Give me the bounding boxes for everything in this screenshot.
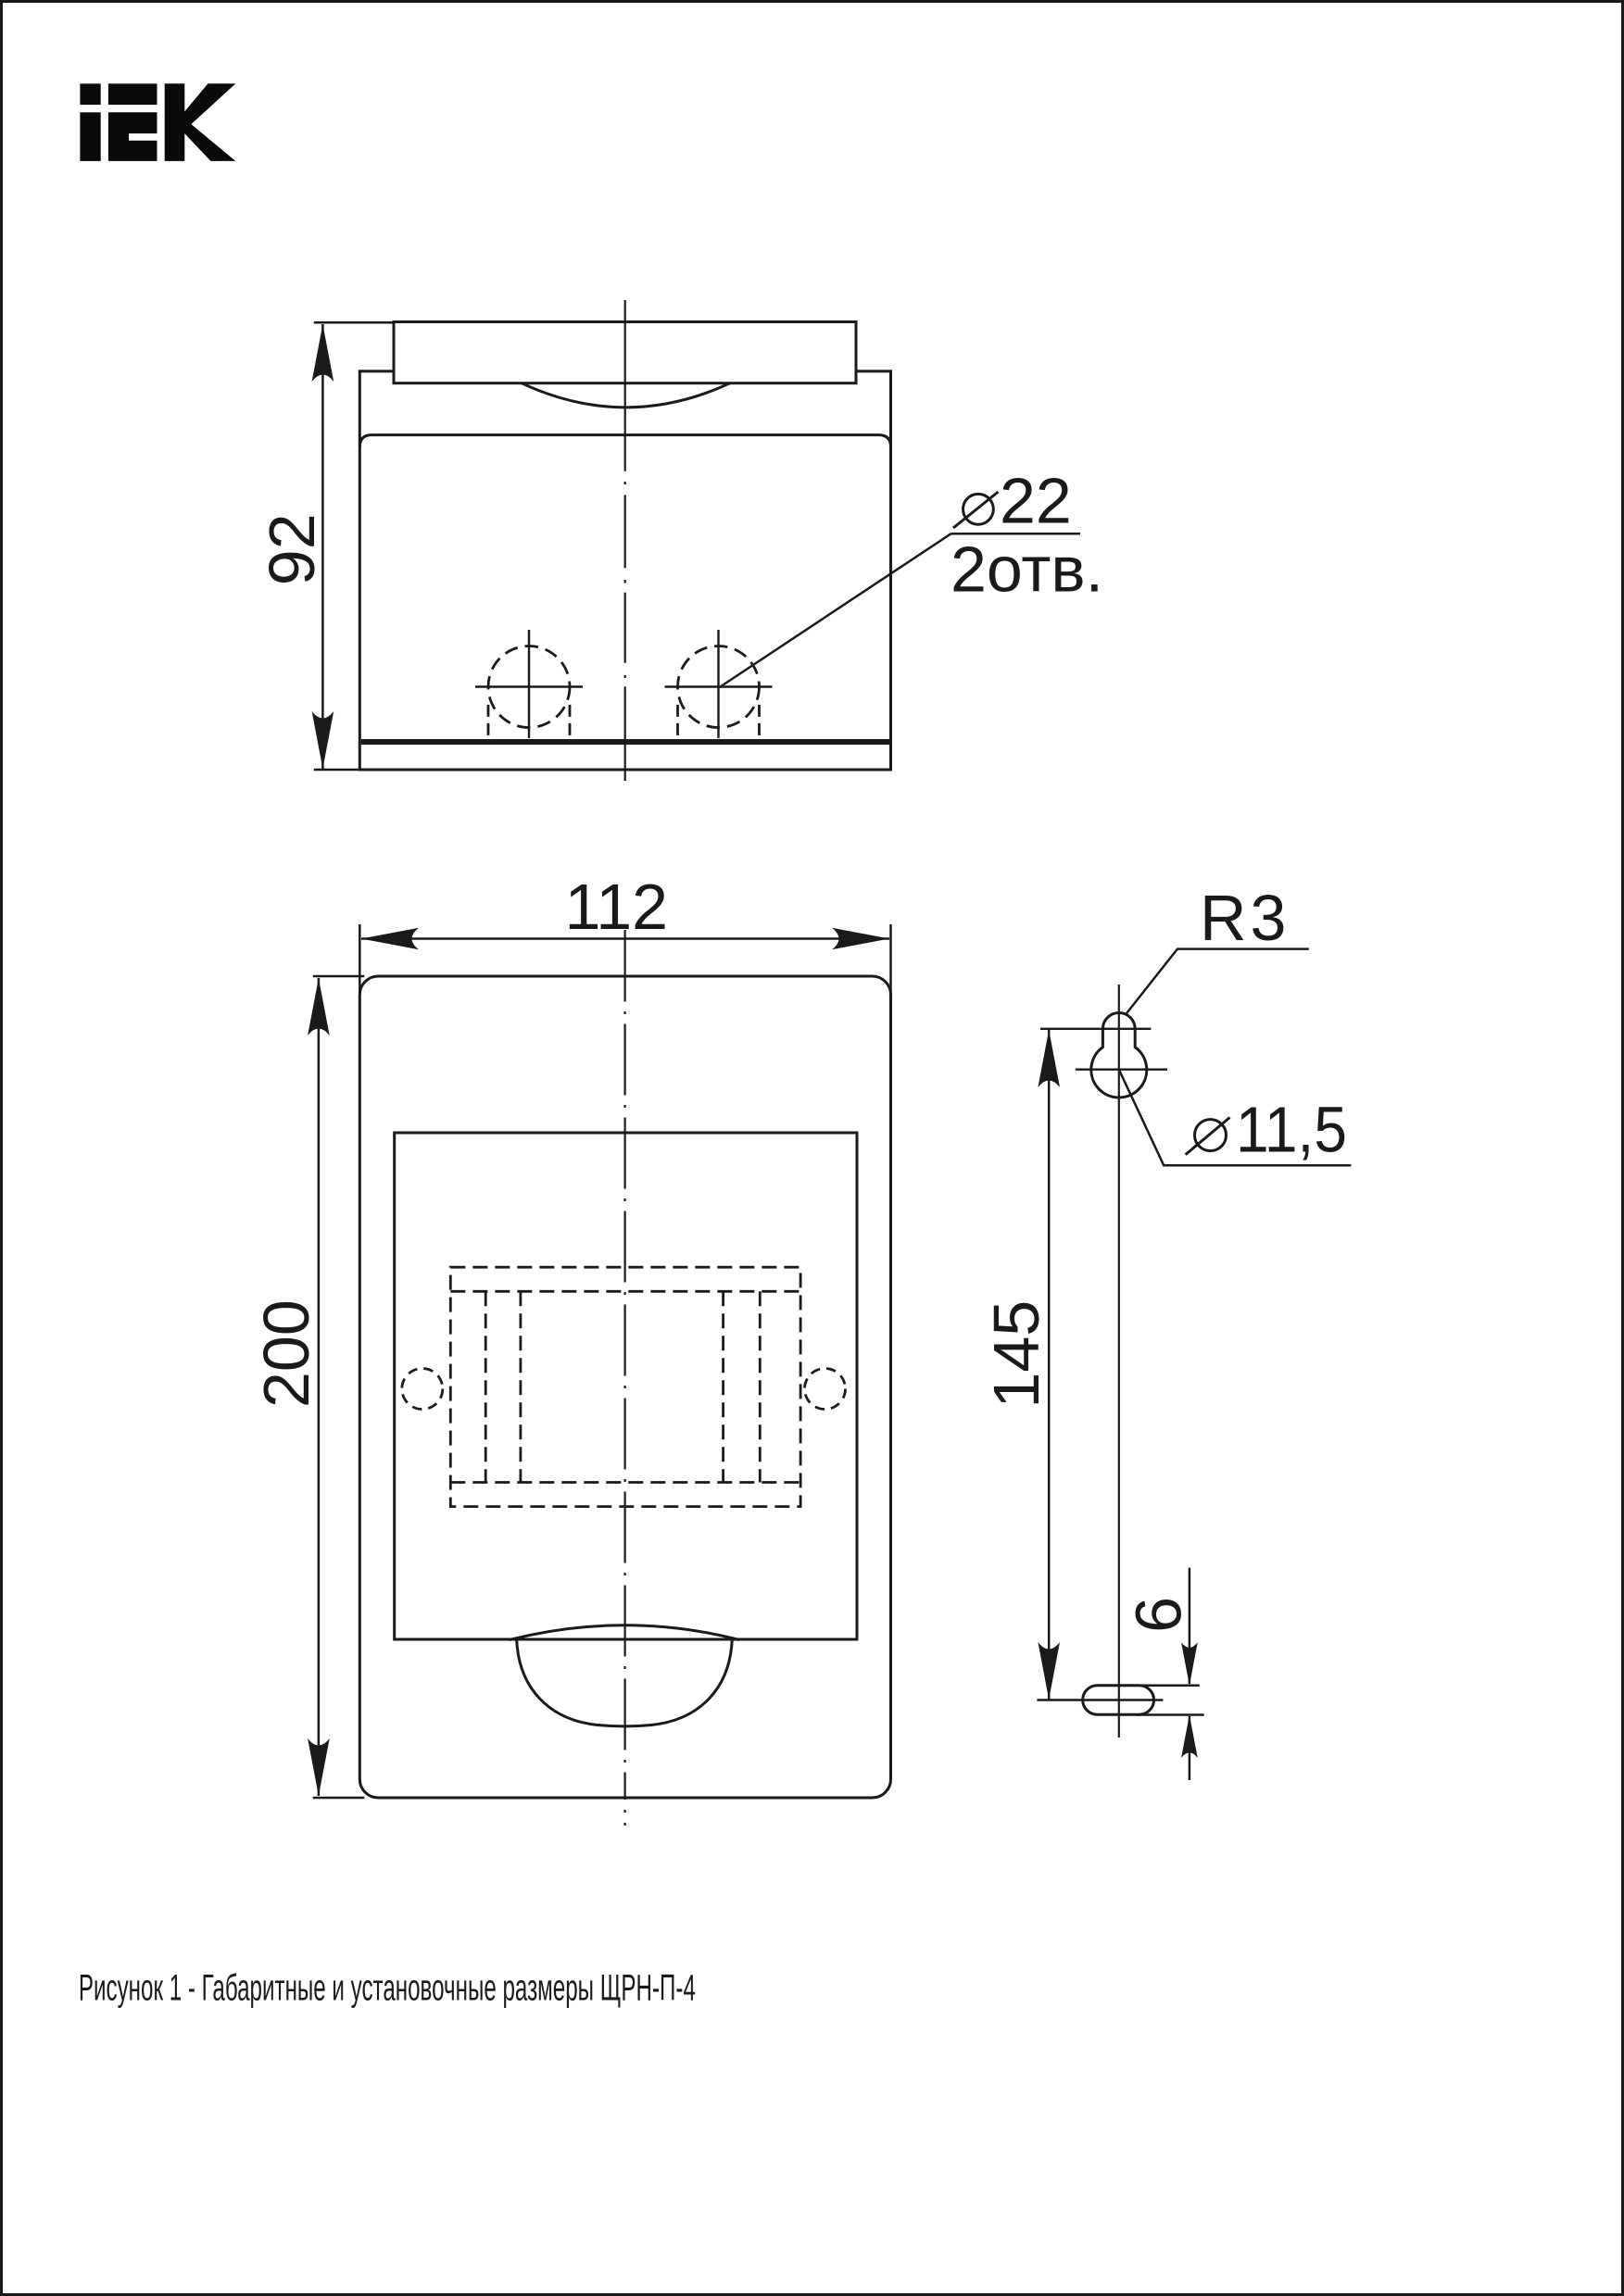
svg-text:145: 145 bbox=[980, 1300, 1052, 1409]
svg-text:6: 6 bbox=[1122, 1597, 1194, 1633]
svg-text:11,5: 11,5 bbox=[1236, 1094, 1347, 1166]
svg-text:200: 200 bbox=[250, 1299, 322, 1408]
svg-text:92: 92 bbox=[256, 513, 328, 585]
svg-text:112: 112 bbox=[564, 871, 668, 943]
svg-text:R3: R3 bbox=[1200, 882, 1290, 954]
svg-text:22: 22 bbox=[1000, 465, 1072, 537]
svg-text:Рисунок 1 - Габаритные и устан: Рисунок 1 - Габаритные и установочные ра… bbox=[79, 1967, 696, 2008]
svg-text:2отв.: 2отв. bbox=[950, 533, 1103, 606]
